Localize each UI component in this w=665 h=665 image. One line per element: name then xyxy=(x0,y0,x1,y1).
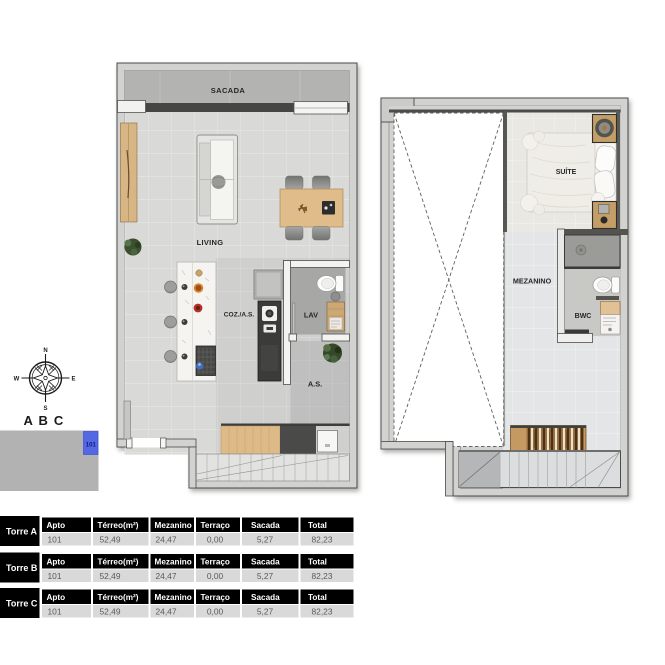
svg-text:Mezanino: Mezanino xyxy=(155,521,192,530)
svg-text:0,00: 0,00 xyxy=(207,571,224,581)
svg-text:LIVING: LIVING xyxy=(197,238,224,247)
svg-text:52,49: 52,49 xyxy=(100,571,121,581)
svg-text:101: 101 xyxy=(86,443,97,449)
svg-text:52,49: 52,49 xyxy=(100,535,121,545)
svg-text:Total: Total xyxy=(308,593,327,602)
svg-text:E: E xyxy=(71,377,75,383)
svg-text:Mezanino: Mezanino xyxy=(155,558,192,567)
svg-text:A B C: A B C xyxy=(24,413,65,428)
svg-text:SUÍTE: SUÍTE xyxy=(556,167,577,176)
svg-text:0,00: 0,00 xyxy=(207,607,224,617)
svg-text:Terraço: Terraço xyxy=(201,558,230,567)
svg-text:82,23: 82,23 xyxy=(312,535,333,545)
svg-text:MEZANINO: MEZANINO xyxy=(513,277,552,286)
svg-text:S: S xyxy=(43,406,47,412)
svg-text:Apto: Apto xyxy=(47,593,66,602)
svg-text:52,49: 52,49 xyxy=(100,607,121,617)
svg-text:101: 101 xyxy=(48,571,62,581)
svg-text:5,27: 5,27 xyxy=(257,535,274,545)
svg-text:Torre B: Torre B xyxy=(6,563,38,573)
svg-text:Mezanino: Mezanino xyxy=(155,593,192,602)
svg-text:COZ./A.S.: COZ./A.S. xyxy=(224,312,255,319)
svg-text:N: N xyxy=(43,348,47,354)
svg-text:5,27: 5,27 xyxy=(257,607,274,617)
svg-text:82,23: 82,23 xyxy=(312,571,333,581)
svg-text:0,00: 0,00 xyxy=(207,535,224,545)
svg-text:82,23: 82,23 xyxy=(312,607,333,617)
svg-text:Torre A: Torre A xyxy=(6,527,38,537)
svg-text:24,47: 24,47 xyxy=(156,535,177,545)
svg-text:Térreo(m²): Térreo(m²) xyxy=(98,521,139,530)
svg-text:5,27: 5,27 xyxy=(257,571,274,581)
svg-text:101: 101 xyxy=(48,535,62,545)
svg-text:Torre C: Torre C xyxy=(6,599,38,609)
svg-text:A.S.: A.S. xyxy=(308,380,322,389)
svg-text:LAV: LAV xyxy=(304,311,318,320)
svg-text:Sacada: Sacada xyxy=(251,558,280,567)
svg-text:Apto: Apto xyxy=(47,558,66,567)
svg-text:Térreo(m²): Térreo(m²) xyxy=(98,593,139,602)
svg-text:Sacada: Sacada xyxy=(251,593,280,602)
svg-text:Total: Total xyxy=(308,521,327,530)
svg-text:Total: Total xyxy=(308,558,327,567)
svg-text:SACADA: SACADA xyxy=(211,86,246,95)
svg-text:Sacada: Sacada xyxy=(251,521,280,530)
svg-text:W: W xyxy=(14,377,20,383)
svg-text:Terraço: Terraço xyxy=(201,521,230,530)
svg-text:BWC: BWC xyxy=(575,313,592,320)
svg-text:24,47: 24,47 xyxy=(156,607,177,617)
svg-text:101: 101 xyxy=(48,607,62,617)
svg-text:24,47: 24,47 xyxy=(156,571,177,581)
svg-text:Terraço: Terraço xyxy=(201,593,230,602)
svg-text:Térreo(m²): Térreo(m²) xyxy=(98,558,139,567)
svg-text:Apto: Apto xyxy=(47,521,66,530)
